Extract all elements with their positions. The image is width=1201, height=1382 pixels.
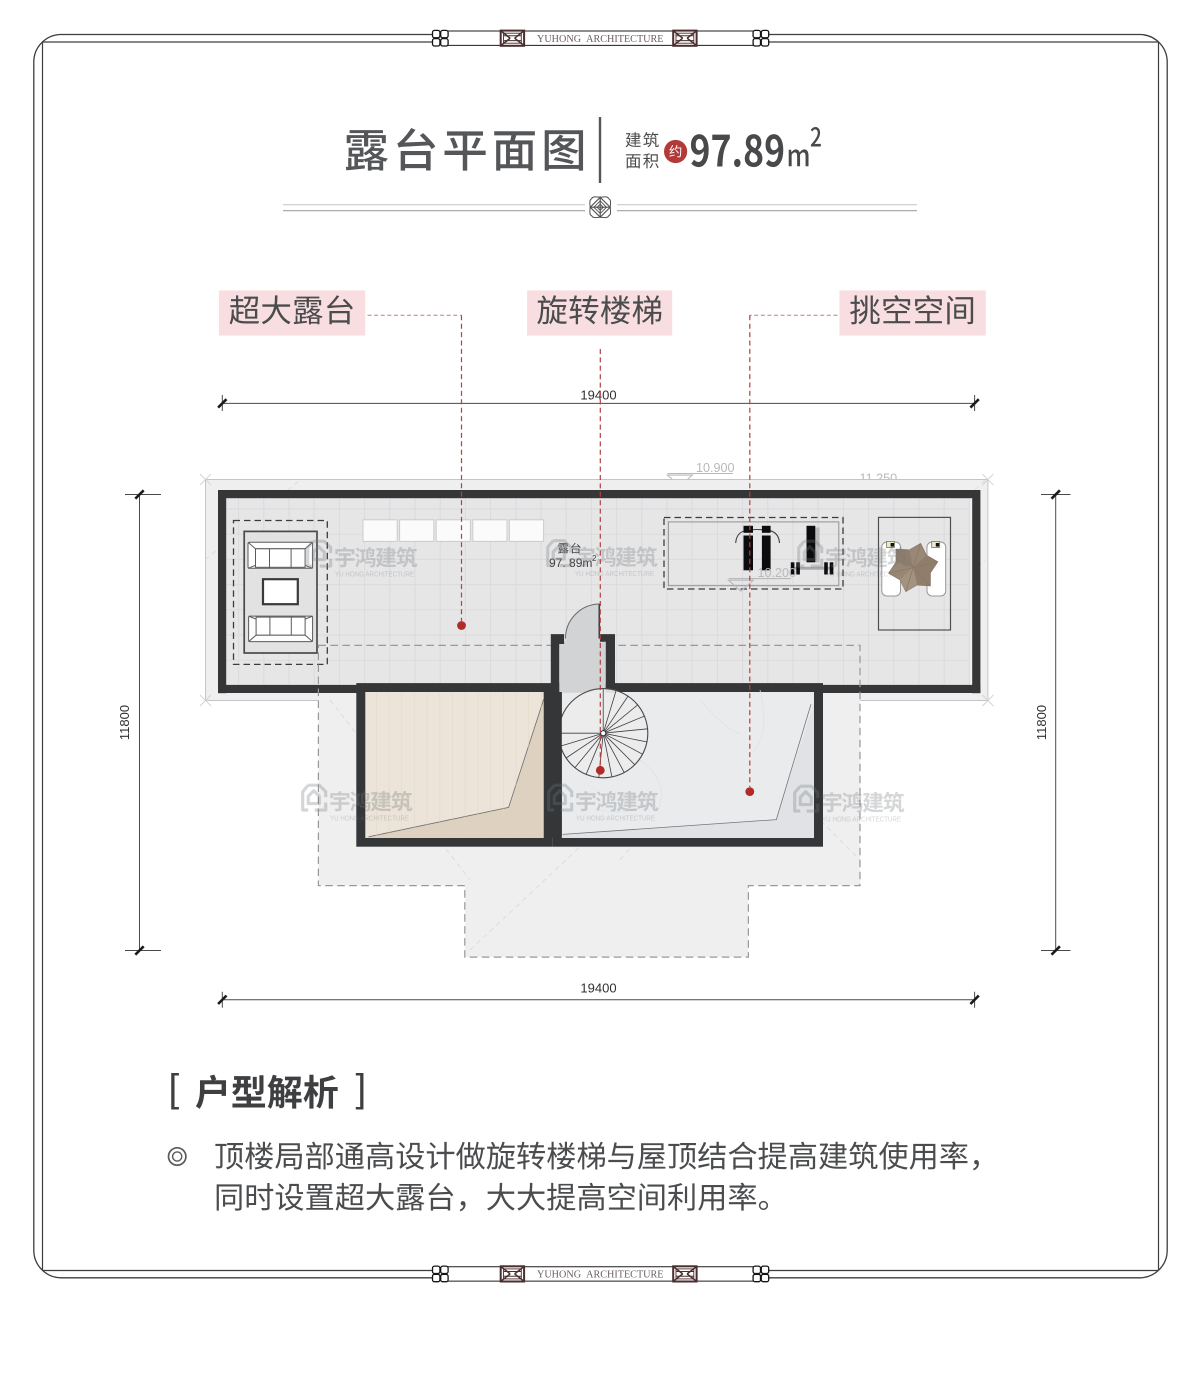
svg-text:]: ] — [356, 1068, 367, 1111]
svg-text:YUHONG ARCHITECTURE: YUHONG ARCHITECTURE — [537, 1270, 664, 1281]
svg-text:11800: 11800 — [1034, 705, 1049, 740]
svg-text:[: [ — [169, 1068, 180, 1111]
svg-text:YUHONG ARCHITECTURE: YUHONG ARCHITECTURE — [537, 34, 664, 45]
svg-text:YU HONG ARCHITECTURE: YU HONG ARCHITECTURE — [826, 570, 905, 579]
svg-text:YU HONG ARCHITECTURE: YU HONG ARCHITECTURE — [330, 814, 409, 823]
svg-text:19400: 19400 — [580, 981, 616, 996]
svg-text:11800: 11800 — [117, 705, 132, 740]
svg-text:YU HONG ARCHITECTURE: YU HONG ARCHITECTURE — [575, 569, 654, 578]
svg-text:YU HONG ARCHITECTURE: YU HONG ARCHITECTURE — [335, 570, 414, 579]
svg-text:19400: 19400 — [580, 388, 616, 403]
svg-text:YU HONG ARCHITECTURE: YU HONG ARCHITECTURE — [822, 815, 901, 824]
svg-text:YU HONG ARCHITECTURE: YU HONG ARCHITECTURE — [576, 814, 655, 823]
svg-text:10.900: 10.900 — [696, 461, 735, 475]
svg-text:10.200: 10.200 — [758, 566, 797, 580]
